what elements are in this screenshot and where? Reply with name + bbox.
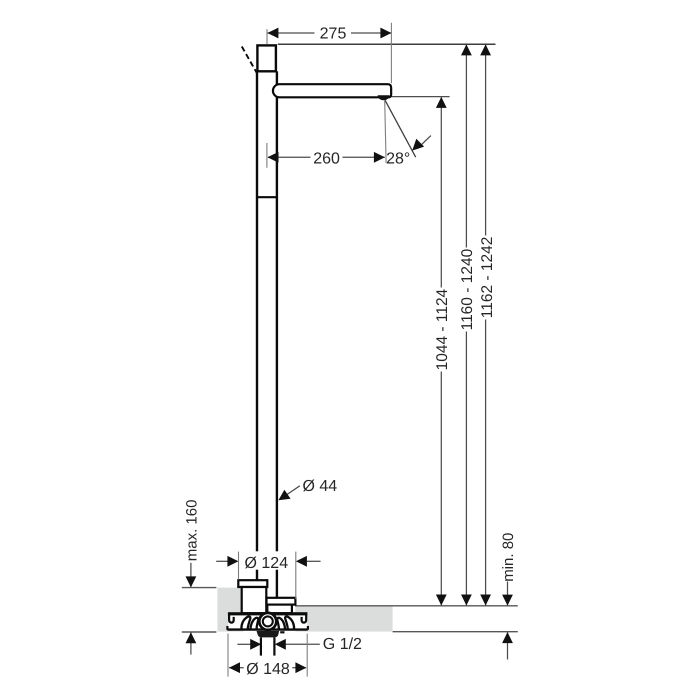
svg-text:max. 160: max. 160 — [183, 500, 200, 562]
svg-text:Ø 44: Ø 44 — [303, 478, 338, 495]
svg-text:1160 - 1240: 1160 - 1240 — [459, 248, 476, 330]
svg-text:260: 260 — [313, 150, 340, 167]
svg-text:1162 - 1242: 1162 - 1242 — [479, 237, 496, 319]
svg-text:1044 - 1124: 1044 - 1124 — [434, 288, 451, 370]
svg-text:Ø 148: Ø 148 — [246, 661, 290, 678]
svg-text:G 1/2: G 1/2 — [323, 636, 362, 653]
svg-text:28°: 28° — [386, 150, 410, 167]
svg-text:min. 80: min. 80 — [500, 533, 517, 582]
svg-text:Ø 124: Ø 124 — [245, 555, 289, 572]
svg-text:275: 275 — [320, 25, 347, 42]
